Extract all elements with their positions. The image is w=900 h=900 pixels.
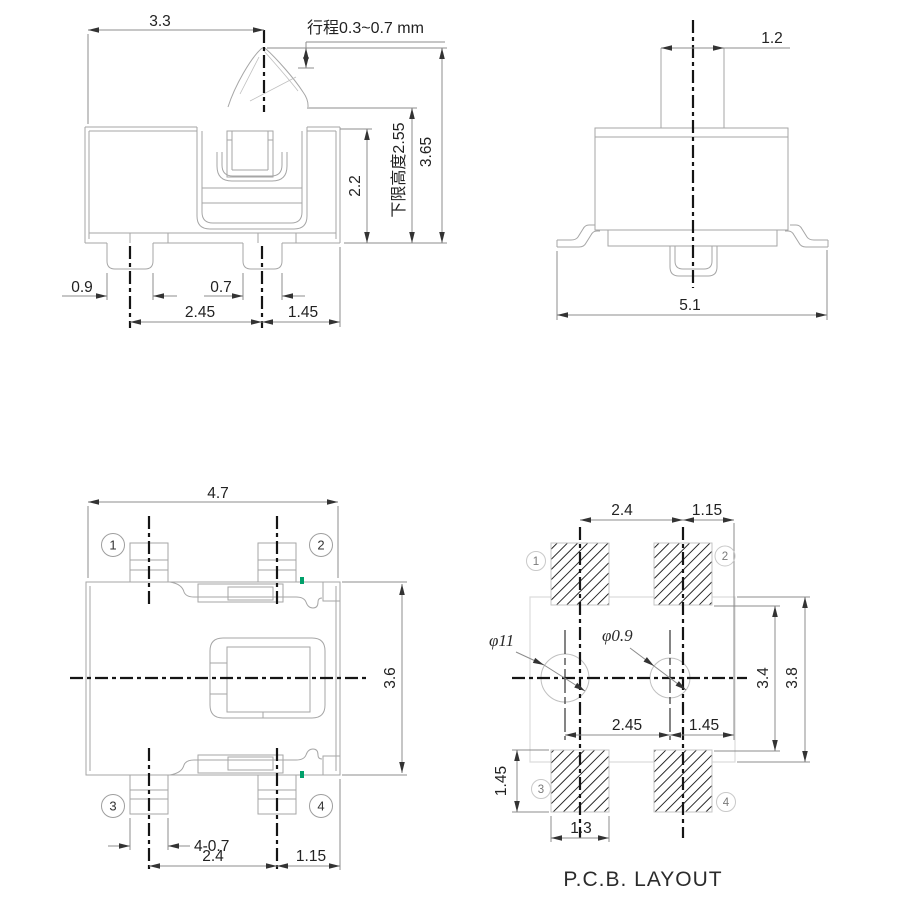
pcb-body-outline: [530, 597, 735, 762]
top-dimension-lines: [88, 502, 407, 870]
dim-leg1-width: 0.9: [71, 279, 93, 296]
dim-outer-span: 3.8: [784, 667, 801, 689]
dim-total-height: 3.65: [418, 137, 435, 167]
dim-hole-to-edge: 1.45: [689, 717, 719, 734]
dim-hole-pitch: 2.45: [612, 717, 642, 734]
dim-stem-width: 1.2: [761, 30, 783, 47]
pad-number-4: 4: [723, 797, 730, 809]
dim-top-total-width: 4.7: [207, 485, 229, 502]
dim-lower-limit-height: 下限高度2.55: [390, 122, 408, 217]
dim-pin-pitch: 2.4: [202, 848, 224, 865]
datum-mark-bottom: [300, 771, 304, 778]
front-view: 3.3 行程0.3~0.7 mm 2.2 下限高度2.55 3.65 0.9 0…: [62, 13, 447, 328]
pin-number-4: 4: [317, 799, 324, 814]
front-dimension-lines: [62, 30, 447, 327]
technical-drawing-canvas: 3.3 行程0.3~0.7 mm 2.2 下限高度2.55 3.65 0.9 0…: [0, 0, 900, 900]
dim-pin-to-edge: 1.15: [296, 848, 326, 865]
pcb-layout-title: P.C.B. LAYOUT: [563, 868, 722, 891]
dim-pad-height: 1.45: [493, 766, 510, 796]
pad-number-3: 3: [538, 784, 544, 796]
dim-leg2-width: 0.7: [210, 279, 232, 296]
top-view: 1 2 3 4 4.7 3.6 4-0.7 2.4 1.15: [70, 485, 407, 870]
actuator-lever-outline: [228, 48, 308, 107]
dim-width-to-stem: 3.3: [149, 13, 171, 30]
dim-side-total-width: 5.1: [679, 297, 701, 314]
dim-pad-pitch: 2.4: [611, 502, 633, 519]
dim-leg-to-edge: 1.45: [288, 304, 318, 321]
dim-hole1-diameter: φ11: [489, 631, 514, 650]
drawing-svg: 3.3 行程0.3~0.7 mm 2.2 下限高度2.55 3.65 0.9 0…: [0, 0, 900, 900]
dim-pad-to-edge: 1.15: [692, 502, 722, 519]
dim-pad-width: 1.3: [570, 820, 592, 837]
datum-mark-top: [300, 577, 304, 584]
pad-number-2: 2: [722, 551, 728, 563]
pin-number-2: 2: [317, 538, 324, 553]
pin-number-3: 3: [109, 799, 116, 814]
pad-number-1: 1: [533, 556, 539, 568]
dim-body-height: 2.2: [347, 175, 364, 197]
dim-top-total-depth: 3.6: [382, 667, 399, 689]
front-body-outline: [85, 127, 340, 269]
dim-travel: 行程0.3~0.7 mm: [307, 19, 424, 37]
dim-hole2-diameter: φ0.9: [602, 626, 633, 645]
pcb-layout-view: 1 2 3 4 2.4 1.15 φ11 φ0.9 3.4 3.8 2.45 1…: [489, 502, 810, 891]
pin-number-1: 1: [109, 538, 116, 553]
side-view: 1.2 5.1: [557, 20, 828, 320]
dim-inner-span: 3.4: [755, 667, 772, 689]
dim-leg-pitch: 2.45: [185, 304, 215, 321]
